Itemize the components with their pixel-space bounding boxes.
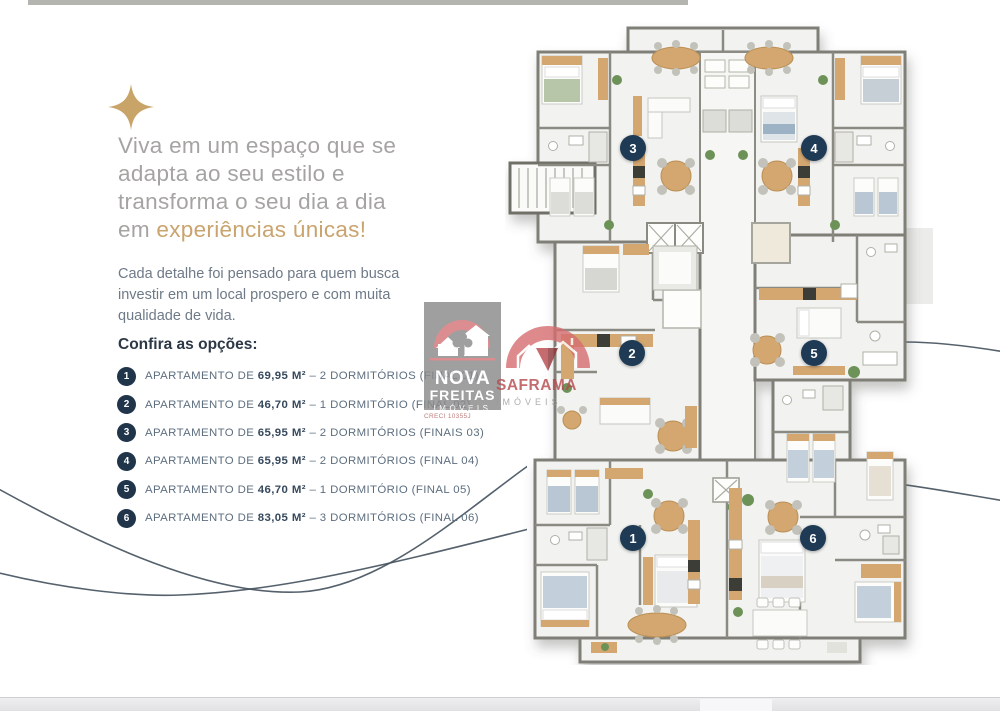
headline-line: adapta ao seu estilo e bbox=[118, 160, 396, 188]
headline: Viva em um espaço que se adapta ao seu e… bbox=[118, 132, 396, 244]
option-number-badge: 5 bbox=[117, 480, 136, 499]
headline-line: transforma o seu dia a dia bbox=[118, 188, 396, 216]
sparkle-star-icon bbox=[108, 84, 154, 130]
option-number-badge: 4 bbox=[117, 452, 136, 471]
apartment-option-4: 4 APARTAMENTO DE 65,95 M² – 2 DORMITÓRIO… bbox=[117, 447, 484, 475]
apartment-option-5: 5 APARTAMENTO DE 46,70 M² – 1 DORMITÓRIO… bbox=[117, 476, 484, 504]
saframa-watermark: SAFRAMA IMÓVEIS bbox=[496, 320, 612, 408]
options-heading: Confira as opções: bbox=[118, 336, 258, 354]
unit-badge-2: 2 bbox=[619, 340, 645, 366]
option-number-badge: 1 bbox=[117, 367, 136, 386]
saframa-subtitle: IMÓVEIS bbox=[496, 396, 612, 408]
unit-badge-5: 5 bbox=[801, 340, 827, 366]
headline-line: Viva em um espaço que se bbox=[118, 132, 396, 160]
saframa-name: SAFRAMA bbox=[496, 378, 612, 394]
option-number-badge: 6 bbox=[117, 509, 136, 528]
bottom-bar-highlight bbox=[700, 699, 772, 711]
apartment-option-3: 3 APARTAMENTO DE 65,95 M² – 2 DORMITÓRIO… bbox=[117, 419, 484, 447]
nova-freitas-watermark: NOVA FREITAS IMÓVEIS CRECI 10355J bbox=[424, 302, 501, 420]
top-edge-strip bbox=[28, 0, 688, 5]
nova-freitas-logo: NOVA FREITAS IMÓVEIS bbox=[424, 302, 501, 410]
flyer-page: Viva em um espaço que se adapta ao seu e… bbox=[0, 0, 1000, 711]
apartment-option-6: 6 APARTAMENTO DE 83,05 M² – 3 DORMITÓRIO… bbox=[117, 504, 484, 532]
bottom-edge-bar bbox=[0, 697, 1000, 711]
headline-line: em experiências únicas! bbox=[118, 216, 396, 244]
saframa-logo-icon bbox=[496, 320, 600, 372]
nova-freitas-name-2: FREITAS bbox=[424, 388, 501, 403]
option-number-badge: 3 bbox=[117, 423, 136, 442]
nova-freitas-logo-icon bbox=[424, 304, 501, 362]
nova-freitas-name-1: NOVA bbox=[424, 369, 501, 388]
unit-badge-4: 4 bbox=[801, 135, 827, 161]
nova-freitas-creci: CRECI 10355J bbox=[424, 413, 501, 420]
unit-badge-6: 6 bbox=[800, 525, 826, 551]
unit-badge-1: 1 bbox=[620, 525, 646, 551]
unit-badge-3: 3 bbox=[620, 135, 646, 161]
option-number-badge: 2 bbox=[117, 395, 136, 414]
intro-paragraph: Cada detalhe foi pensado para quem busca… bbox=[118, 264, 399, 327]
headline-highlight: experiências únicas! bbox=[156, 217, 366, 242]
